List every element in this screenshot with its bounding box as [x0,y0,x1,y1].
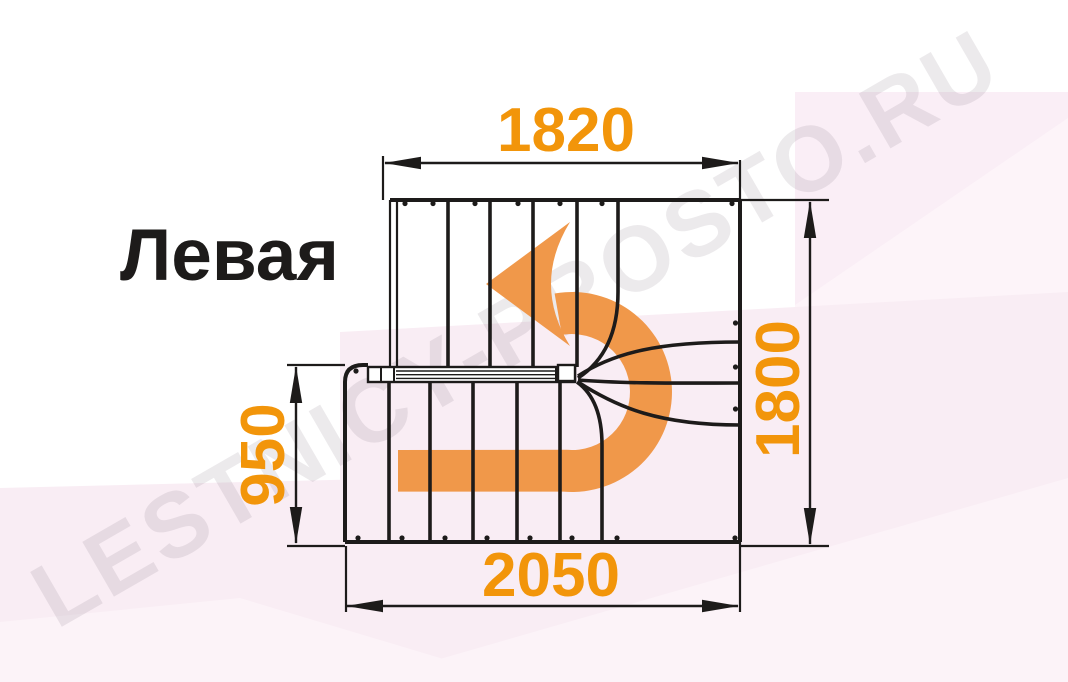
dimension-bottom-width: 2050 [401,545,701,607]
landing-strip [368,365,575,382]
direction-arrow [398,222,672,492]
dimension-right-height: 1800 [748,239,810,539]
newel-post [558,365,575,381]
direction-arrow-head [486,222,570,346]
dimension-left-height: 950 [233,305,295,605]
staircase-plan-diagram: LESTNICY-PROSTO.RU [0,0,1068,682]
plan-title: Левая [120,214,339,297]
dimension-top-width: 1820 [416,100,716,162]
direction-arrow-arc [398,292,672,492]
upper-flight-left-wall [390,200,397,367]
upper-flight-treads [448,200,618,378]
